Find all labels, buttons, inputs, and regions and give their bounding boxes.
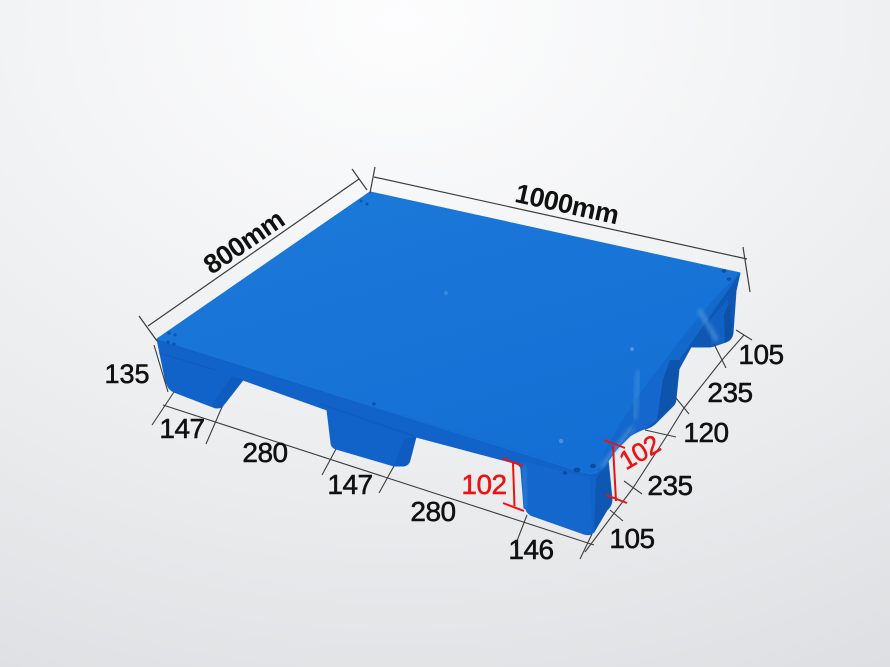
svg-text:235: 235 bbox=[647, 470, 692, 501]
svg-text:146: 146 bbox=[508, 534, 553, 565]
svg-text:120: 120 bbox=[683, 417, 728, 448]
svg-text:280: 280 bbox=[410, 496, 455, 527]
svg-text:147: 147 bbox=[327, 469, 372, 500]
svg-text:147: 147 bbox=[159, 413, 204, 444]
svg-text:280: 280 bbox=[242, 437, 287, 468]
svg-text:235: 235 bbox=[707, 377, 752, 408]
svg-text:105: 105 bbox=[738, 339, 783, 370]
svg-text:105: 105 bbox=[609, 523, 654, 554]
svg-text:102: 102 bbox=[461, 469, 506, 500]
svg-text:135: 135 bbox=[104, 359, 149, 389]
